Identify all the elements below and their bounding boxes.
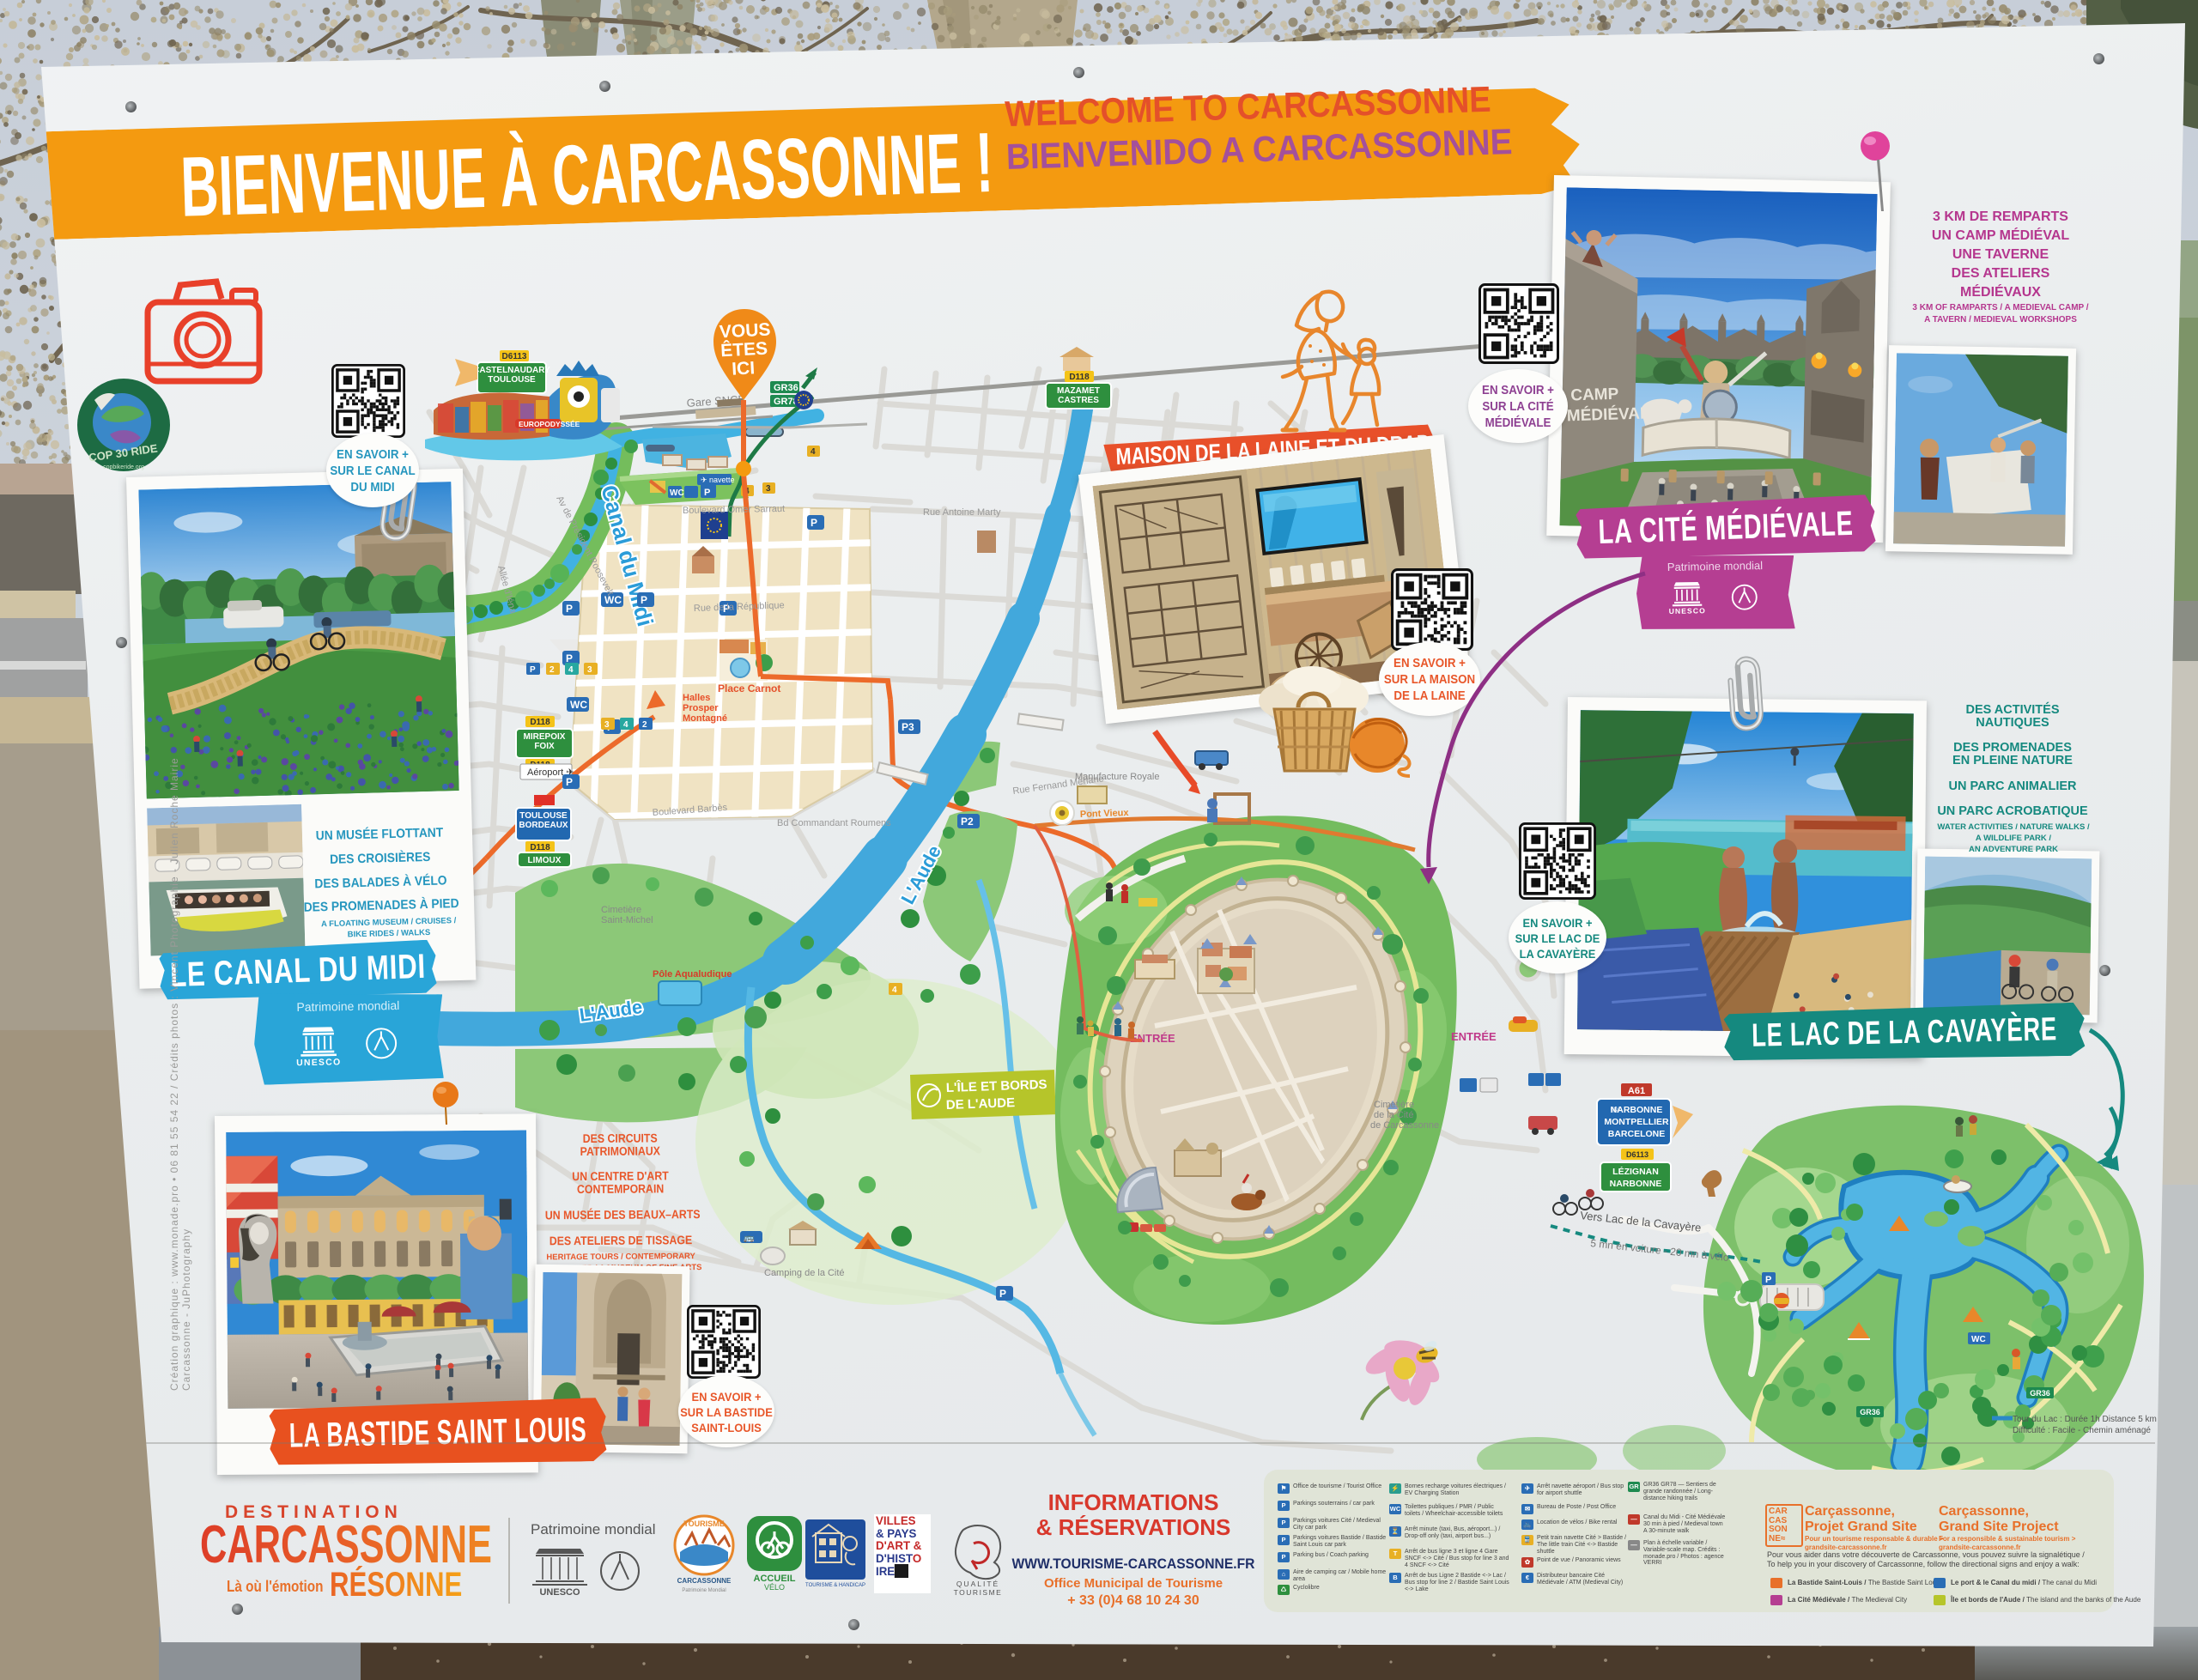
svg-text:MONTPELLIER: MONTPELLIER (1604, 1117, 1669, 1127)
svg-text:Difficulté : Facile - Chemin a: Difficulté : Facile - Chemin aménagé (2013, 1426, 2151, 1435)
svg-text:CARCASSONNE: CARCASSONNE (677, 1577, 732, 1585)
svg-text:D118: D118 (1069, 373, 1090, 382)
svg-text:TOURISME: TOURISME (683, 1519, 724, 1528)
svg-text:4: 4 (623, 720, 628, 730)
svg-text:3: 3 (587, 665, 592, 675)
svg-text:CASTELNAUDARY: CASTELNAUDARY (473, 366, 550, 375)
svg-text:WC: WC (670, 488, 684, 498)
svg-text:Manufacture Royale: Manufacture Royale (1075, 772, 1159, 782)
svg-text:FOIX: FOIX (534, 742, 555, 751)
svg-text:CASTRES: CASTRES (1058, 396, 1099, 405)
svg-text:P: P (641, 594, 647, 606)
svg-text:LÉZIGNAN: LÉZIGNAN (1612, 1166, 1659, 1177)
svg-text:Montagné: Montagné (683, 713, 727, 724)
svg-text:D6113: D6113 (502, 352, 527, 361)
svg-text:MAZAMET: MAZAMET (1057, 386, 1100, 396)
svg-text:UNESCO: UNESCO (296, 1058, 341, 1068)
svg-text:UNESCO: UNESCO (539, 1587, 580, 1598)
svg-text:Cimetière: Cimetière (601, 905, 641, 915)
svg-text:GR36: GR36 (2030, 1389, 2050, 1398)
svg-text:ÊTES: ÊTES (720, 338, 768, 361)
svg-text:2: 2 (549, 665, 555, 675)
svg-text:MÉDIÉVAL: MÉDIÉVAL (1566, 403, 1650, 425)
svg-text:3: 3 (604, 720, 610, 730)
svg-text:GR36: GR36 (1860, 1408, 1880, 1416)
svg-text:MIREPOIX: MIREPOIX (524, 732, 566, 742)
svg-text:QUALITÉ: QUALITÉ (956, 1580, 999, 1588)
svg-text:P: P (1765, 1275, 1771, 1285)
svg-text:Bd Commandant Roumens: Bd Commandant Roumens (777, 818, 891, 828)
svg-text:A61: A61 (1628, 1086, 1645, 1096)
svg-text:BARCELONE: BARCELONE (1608, 1129, 1666, 1139)
svg-text:GR36: GR36 (774, 383, 798, 393)
svg-text:P: P (566, 603, 573, 615)
svg-text:4: 4 (892, 986, 897, 995)
svg-text:Pôle Aqualudique: Pôle Aqualudique (653, 969, 732, 979)
svg-text:ENTRÉE: ENTRÉE (1130, 1032, 1175, 1045)
svg-text:CAMP: CAMP (1570, 385, 1619, 405)
svg-text:P: P (704, 488, 710, 498)
svg-text:Vers Lac de la Cavayère: Vers Lac de la Cavayère (1580, 1209, 1702, 1234)
svg-text:P: P (566, 776, 573, 788)
svg-text:LIMOUX: LIMOUX (528, 856, 562, 865)
svg-text:Prosper: Prosper (683, 703, 719, 713)
svg-text:2: 2 (642, 720, 647, 730)
svg-text:Camping de la Cité: Camping de la Cité (764, 1268, 845, 1278)
svg-text:P: P (566, 652, 573, 664)
svg-text:D6113: D6113 (1626, 1150, 1648, 1159)
svg-text:ICI: ICI (732, 358, 756, 379)
svg-text:WC: WC (570, 699, 587, 711)
svg-text:Halles: Halles (683, 693, 710, 703)
svg-text:TOULOUSE: TOULOUSE (488, 375, 536, 385)
svg-text:🚌: 🚌 (744, 1234, 755, 1243)
svg-text:TOURISME: TOURISME (954, 1588, 1003, 1595)
svg-text:5 mn en voiture - 20 mn à vélo: 5 mn en voiture - 20 mn à vélo (1590, 1237, 1730, 1264)
svg-text:TOULOUSE: TOULOUSE (519, 811, 568, 821)
svg-text:TOURISME & HANDICAP: TOURISME & HANDICAP (805, 1583, 865, 1588)
svg-text:P2: P2 (961, 816, 974, 828)
svg-text:DE L'AUDE: DE L'AUDE (946, 1095, 1016, 1113)
svg-text:Rue Antoine Marty: Rue Antoine Marty (923, 507, 1001, 518)
svg-text:D118: D118 (530, 718, 550, 727)
svg-text:P: P (530, 665, 536, 675)
svg-text:✈ navette: ✈ navette (701, 476, 735, 484)
svg-text:Pont Vieux: Pont Vieux (1080, 808, 1130, 820)
svg-text:Place Carnot: Place Carnot (718, 682, 780, 694)
svg-text:NARBONNE: NARBONNE (1611, 1105, 1663, 1115)
svg-text:NARBONNE: NARBONNE (1610, 1179, 1662, 1189)
svg-text:P: P (811, 517, 817, 529)
svg-text:Boulevard Omer Sarraut: Boulevard Omer Sarraut (683, 504, 785, 516)
svg-text:WC: WC (1971, 1335, 1986, 1344)
svg-text:EUROPODYSSÉE: EUROPODYSSÉE (519, 420, 580, 428)
svg-text:P3: P3 (902, 721, 914, 733)
svg-text:3: 3 (766, 484, 771, 494)
svg-text:4: 4 (568, 665, 574, 675)
svg-text:copbikeride.org: copbikeride.org (103, 464, 144, 470)
svg-text:4: 4 (811, 447, 816, 457)
svg-text:BORDEAUX: BORDEAUX (519, 821, 568, 830)
svg-text:Tour du Lac : Durée 1h Distanc: Tour du Lac : Durée 1h Distance 5 km (2013, 1415, 2157, 1424)
svg-text:Patrimoine Mondial: Patrimoine Mondial (682, 1588, 726, 1593)
svg-text:VÉLO: VÉLO (764, 1583, 785, 1590)
svg-text:Saint-Michel: Saint-Michel (601, 915, 653, 925)
svg-text:P: P (999, 1288, 1006, 1300)
svg-text:D118: D118 (530, 843, 550, 852)
